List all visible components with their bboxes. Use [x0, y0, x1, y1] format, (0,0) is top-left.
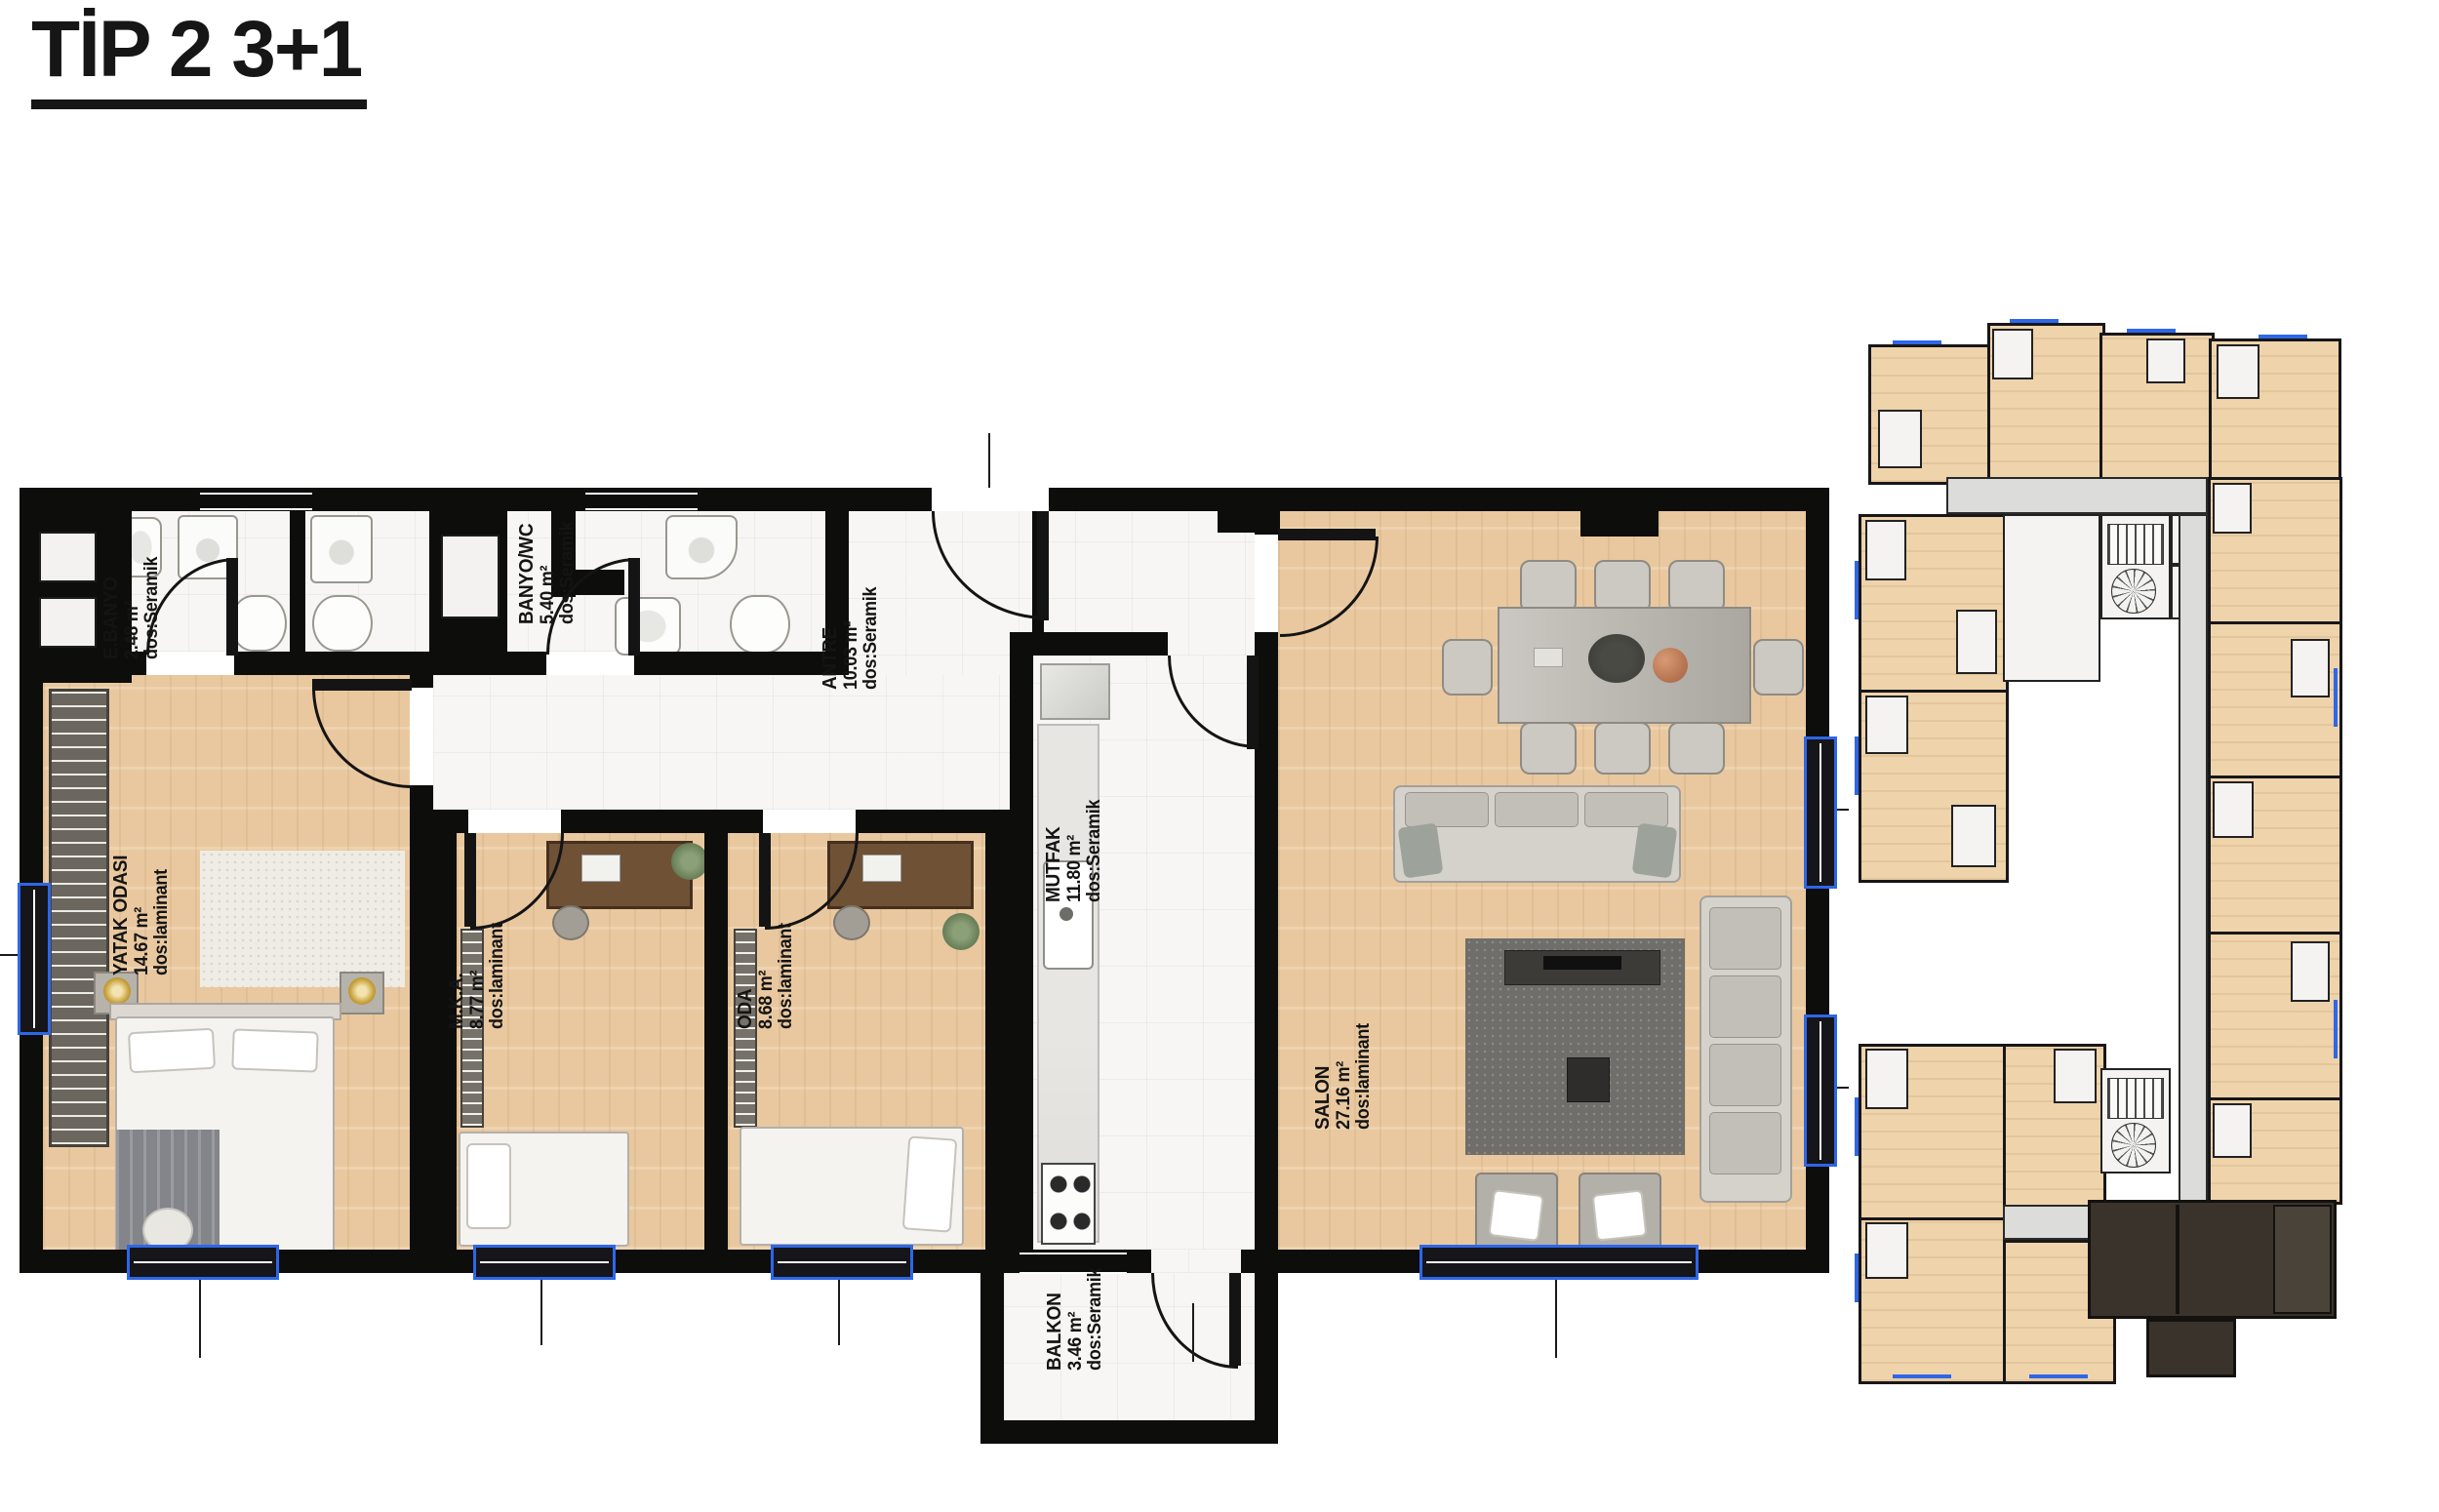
armchair-pillow [1488, 1189, 1543, 1242]
keyplan-corridor [2179, 514, 2208, 1205]
shaft-window-box [39, 597, 97, 648]
dining-chair [1594, 722, 1651, 775]
dining-chair [1668, 722, 1725, 775]
wall-mka-left [433, 833, 457, 1273]
l-sofa-cushion [1709, 1044, 1781, 1106]
wall-master-right [410, 785, 433, 1273]
balcony-wall-right [1255, 1273, 1278, 1444]
desk-laptop [581, 855, 620, 882]
washing-machine [310, 515, 373, 583]
salon-bottom-window [1419, 1245, 1699, 1280]
bed-pillow [231, 1028, 318, 1072]
dining-chair [1594, 560, 1651, 613]
l-sofa-cushion [1709, 975, 1781, 1038]
desk-laptop [862, 855, 901, 882]
balcony-wall-bottom [980, 1420, 1278, 1444]
desk-chair [552, 905, 589, 940]
floor-plan-sheet: TİP 2 3+1 [0, 0, 2439, 1512]
keyplan-inner-room [1951, 805, 1996, 867]
keyplan-inner-room [1865, 696, 1908, 754]
room-label-mka: M.K.A. 8.77 m² dos:laminant [447, 926, 507, 1029]
room-area: 5.40 m² [539, 518, 559, 624]
room-area: 27.16 m² [1335, 1028, 1355, 1131]
keyplan-window-tick [1855, 1097, 1859, 1156]
dimension-tick [0, 954, 20, 956]
spiral-stairs-icon [2111, 1123, 2156, 1168]
room-label-banyo-wc: BANYO/WC 5.40 m² dos:Seramik [517, 518, 578, 624]
keyplan-window-tick [1893, 1374, 1951, 1378]
keyplan-corridor [1946, 477, 2208, 514]
dimension-tick [540, 1275, 542, 1345]
keyplan-inner-room [1878, 410, 1922, 468]
room-label-balkon: BALKON 3.46 m² dos:Seramik [1045, 1278, 1105, 1371]
hall-corridor-floor [433, 675, 1010, 810]
keyplan-window-tick [2010, 319, 2059, 323]
keyplan-inner-room [1865, 520, 1906, 580]
keyplan-inner-room [1865, 1222, 1908, 1279]
room-area: 14.67 m² [133, 856, 153, 975]
keyplan-inner-room [2213, 483, 2252, 534]
room-floor-finish: dos:laminant [1354, 1028, 1375, 1131]
shaft-wall-window [200, 493, 312, 510]
desk-plant [671, 843, 708, 880]
room-floor-finish: dos:Seramik [558, 518, 579, 624]
stove [1041, 1163, 1096, 1245]
room-floor-finish: dos:Seramik [142, 539, 163, 660]
wall-bath-bottom [634, 652, 849, 675]
fridge [1040, 663, 1110, 720]
building-key-plan [1854, 317, 2346, 1385]
keyplan-window-tick [1855, 736, 1859, 795]
mka-window [473, 1245, 616, 1280]
dining-chair [1668, 560, 1725, 613]
room-floor-finish: dos:laminant [488, 926, 508, 1029]
desk-plant [942, 913, 980, 950]
room-area: 3.46 m² [1066, 1278, 1087, 1371]
wall-corridor-bottom [561, 810, 763, 833]
wall-master-right [410, 675, 433, 688]
room-label-antre: ANTRE 10.03 m² dos:Seramik [820, 590, 881, 690]
room-label-mutfak: MUTFAK 11.80 m² dos:Seramik [1044, 805, 1104, 902]
sofa-cushion [1405, 792, 1489, 827]
table-decor-bowl [1653, 648, 1688, 683]
balcony-wall-left [980, 1273, 1004, 1444]
sofa-cushion [1584, 792, 1668, 827]
dimension-tick [838, 1275, 840, 1345]
balcony-wall-window [1020, 1253, 1127, 1274]
room-name: YATAK ODASI [111, 856, 133, 975]
room-area: 8.68 m² [757, 926, 778, 1029]
keyplan-inner-room [2146, 338, 2185, 383]
dimension-tick [1555, 1275, 1557, 1358]
keyplan-inner-room [1956, 610, 1997, 674]
wardrobe [49, 689, 109, 1147]
salon-right-window [1804, 1015, 1837, 1167]
oda-window [771, 1245, 913, 1280]
keyplan-window-tick [1855, 561, 1859, 619]
dimension-tick [1192, 1303, 1194, 1362]
dining-chair [1520, 560, 1577, 613]
shaft-wall-window [585, 493, 698, 510]
keyplan-window-tick [1893, 340, 1941, 344]
room-floor-finish: dos:Seramik [1086, 1278, 1106, 1371]
stairs-icon [2107, 1078, 2164, 1119]
keyplan-inner-room [1865, 1049, 1908, 1109]
room-name: ANTRE [820, 590, 842, 690]
armchair-pillow [1592, 1189, 1648, 1241]
room-label-salon: SALON 27.16 m² dos:laminant [1313, 1028, 1374, 1131]
room-area: 10.03 m² [842, 590, 862, 690]
room-name: SALON [1313, 1028, 1335, 1131]
room-name: BALKON [1045, 1278, 1066, 1371]
master-left-window [18, 883, 51, 1035]
sofa-throw-pillow [1632, 822, 1678, 878]
antre-niche [1218, 511, 1280, 533]
room-area: 8.77 m² [468, 926, 489, 1029]
desk-chair [833, 905, 870, 940]
wall-top-right [1049, 488, 1829, 511]
dining-chair [1520, 722, 1577, 775]
laundry-toilet [312, 595, 373, 652]
table-lamp [103, 977, 131, 1005]
keyplan-highlighted-unit-room [2273, 1205, 2332, 1314]
keyplan-highlighted-unit [2146, 1319, 2236, 1377]
room-floor-finish: dos:laminant [152, 856, 173, 975]
room-name: E.BANYO [101, 539, 123, 660]
salon-right-window [1804, 736, 1837, 889]
bed-pillow [902, 1135, 958, 1232]
keyplan-highlighted-unit-wall [2176, 1205, 2179, 1314]
room-name: M.K.A. [447, 926, 468, 1029]
room-label-ebanyo: E.BANYO 2.48 m² dos:Seramik [101, 539, 162, 660]
room-floor-finish: dos:Seramik [1085, 805, 1105, 902]
keyplan-inner-room [2291, 639, 2330, 697]
ebanyo-toilet [230, 595, 287, 652]
keyplan-window-tick [1855, 1253, 1859, 1302]
room-floor-finish: dos:Seramik [861, 590, 882, 690]
keyplan-inner-room [2213, 1103, 2252, 1158]
keyplan-window-tick [2259, 335, 2307, 338]
keyplan-window-tick [2029, 1374, 2088, 1378]
keyplan-window-tick [2127, 329, 2176, 333]
stairs-icon [2107, 524, 2164, 565]
keyplan-inner-room [2213, 781, 2254, 838]
wall-kitchen-left-upper [1010, 656, 1033, 810]
l-sofa-cushion [1709, 907, 1781, 970]
room-name: MUTFAK [1044, 805, 1065, 902]
dimension-tick [199, 1275, 201, 1358]
wall-mka-right [704, 833, 728, 1273]
table-decor-plates [1534, 648, 1563, 667]
wall-oda-right [985, 810, 1033, 1273]
shaft-window-box [39, 532, 97, 582]
bed-pillow [128, 1028, 216, 1074]
keyplan-inner-room [2217, 344, 2259, 399]
tv [1543, 956, 1621, 970]
bed-pillow [466, 1143, 511, 1229]
master-bedroom-window [127, 1245, 279, 1280]
keyplan-core-rooms [2003, 514, 2100, 682]
wall-kitchen-top [1010, 632, 1168, 656]
room-label-yatak-odasi: YATAK ODASI 14.67 m² dos:laminant [111, 856, 172, 975]
room-area: 2.48 m² [123, 539, 143, 660]
table-lamp [348, 977, 376, 1005]
spiral-stairs-icon [2111, 569, 2156, 614]
keyplan-inner-room [2291, 941, 2330, 1002]
keyplan-window-tick [2334, 668, 2338, 727]
divider-niche [441, 535, 500, 618]
keyplan-inner-room [2054, 1049, 2097, 1103]
kitchen-faucet [1060, 907, 1073, 921]
keyplan-window-tick [2334, 1000, 2338, 1058]
salon-niche [1580, 511, 1659, 537]
room-name: ODA [736, 926, 757, 1029]
table-centerpiece-plant [1588, 634, 1645, 683]
dining-chair [1753, 639, 1804, 696]
room-floor-finish: dos:laminant [777, 926, 797, 1029]
page-title: TİP 2 3+1 [31, 8, 367, 109]
room-area: 11.80 m² [1065, 805, 1086, 902]
coffee-table [1567, 1057, 1610, 1102]
sofa-throw-pillow [1398, 822, 1444, 878]
wall-ebanyo-divider [290, 511, 305, 652]
bedroom-rug [200, 851, 405, 987]
banyo-toilet [730, 595, 790, 654]
keyplan-inner-room [1992, 329, 2033, 379]
room-label-oda: ODA 8.68 m² dos:laminant [736, 926, 796, 1029]
l-sofa-cushion [1709, 1112, 1781, 1174]
dining-chair [1442, 639, 1493, 696]
wall-corridor-bottom [433, 810, 468, 833]
dimension-tick [988, 433, 990, 488]
room-name: BANYO/WC [517, 518, 539, 624]
sofa-cushion [1495, 792, 1579, 827]
